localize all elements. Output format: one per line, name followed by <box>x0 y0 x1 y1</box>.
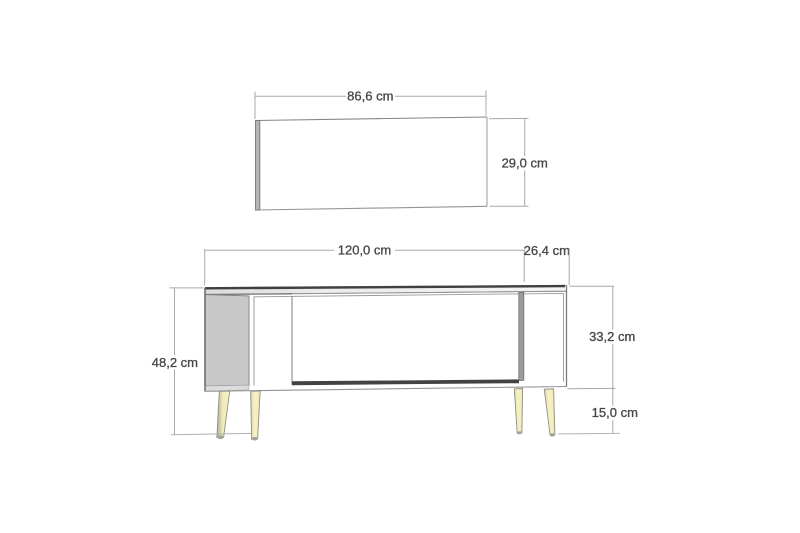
svg-text:48,2 cm: 48,2 cm <box>152 355 198 370</box>
svg-text:26,4 cm: 26,4 cm <box>524 243 570 258</box>
svg-text:15,0 cm: 15,0 cm <box>592 405 638 420</box>
svg-text:120,0 cm: 120,0 cm <box>338 243 391 258</box>
svg-text:86,6 cm: 86,6 cm <box>347 89 393 104</box>
svg-text:29,0 cm: 29,0 cm <box>502 156 548 171</box>
svg-text:33,2 cm: 33,2 cm <box>589 329 635 344</box>
